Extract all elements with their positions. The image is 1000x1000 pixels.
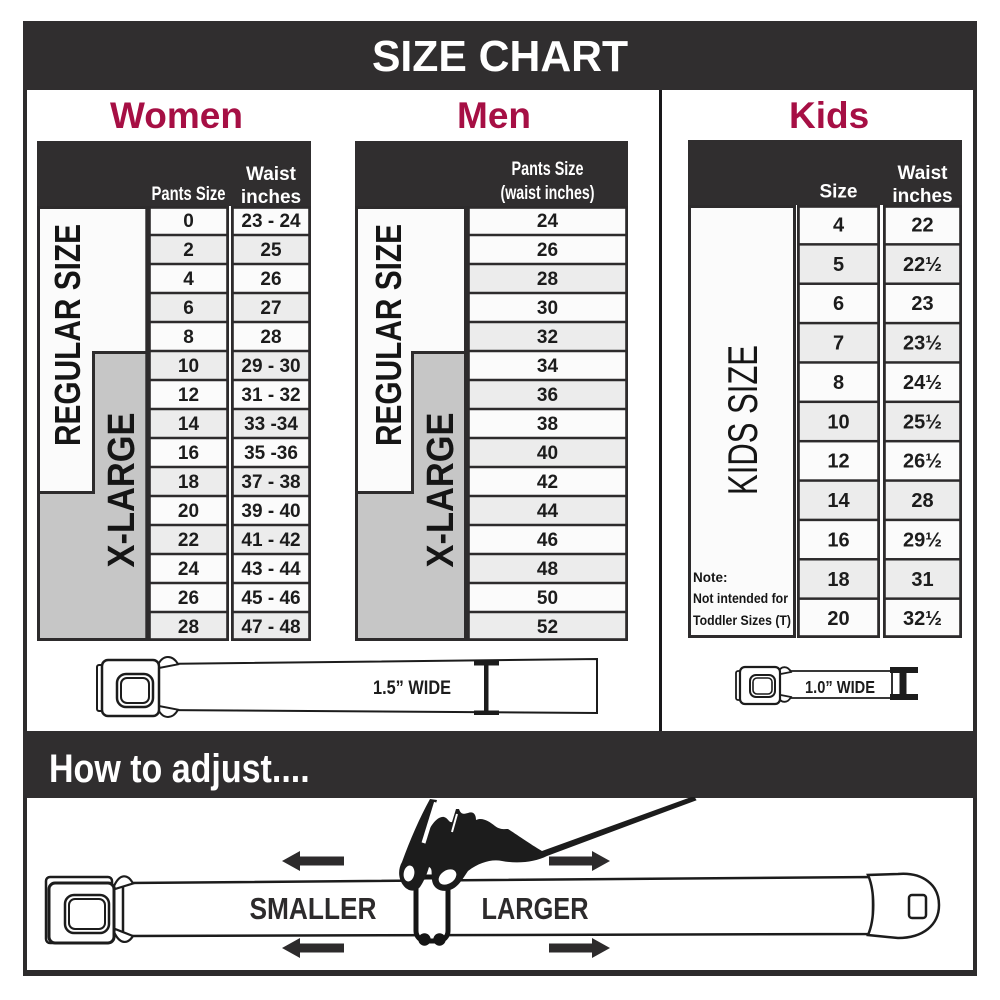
svg-text:4: 4 [183, 269, 194, 290]
svg-text:10: 10 [178, 356, 199, 377]
svg-text:33 -34: 33 -34 [244, 414, 298, 435]
svg-text:14: 14 [178, 414, 200, 435]
svg-text:40: 40 [537, 443, 558, 464]
svg-text:30: 30 [537, 298, 558, 319]
svg-text:Pants Size: Pants Size [152, 184, 226, 205]
svg-text:5: 5 [833, 254, 844, 276]
svg-text:4: 4 [833, 215, 845, 237]
svg-text:Pants Size: Pants Size [512, 159, 584, 180]
svg-text:22½: 22½ [903, 254, 942, 276]
svg-text:10: 10 [827, 411, 849, 433]
svg-text:inches: inches [241, 187, 301, 208]
svg-text:38: 38 [537, 414, 558, 435]
svg-text:41 - 42: 41 - 42 [241, 530, 300, 551]
svg-text:34: 34 [537, 356, 559, 377]
svg-text:X-LARGE: X-LARGE [101, 413, 143, 568]
svg-text:1.5” WIDE: 1.5” WIDE [373, 678, 451, 699]
svg-text:31: 31 [911, 569, 933, 591]
svg-text:36: 36 [537, 385, 558, 406]
svg-text:26: 26 [260, 269, 281, 290]
svg-text:28: 28 [537, 269, 558, 290]
svg-text:26½: 26½ [903, 451, 942, 473]
svg-text:26: 26 [537, 240, 558, 261]
svg-text:28: 28 [911, 490, 933, 512]
svg-text:18: 18 [178, 472, 199, 493]
svg-text:2: 2 [183, 240, 194, 261]
svg-text:24: 24 [178, 559, 200, 580]
svg-text:50: 50 [537, 588, 558, 609]
svg-text:7: 7 [833, 333, 844, 355]
svg-text:Waist: Waist [246, 164, 297, 185]
svg-text:X-LARGE: X-LARGE [420, 413, 462, 568]
svg-text:Not intended for: Not intended for [693, 591, 789, 606]
svg-text:16: 16 [827, 529, 849, 551]
svg-text:43 - 44: 43 - 44 [241, 559, 301, 580]
svg-text:8: 8 [833, 372, 844, 394]
svg-text:Size: Size [819, 182, 857, 203]
svg-text:28: 28 [260, 327, 281, 348]
svg-text:24½: 24½ [903, 372, 942, 394]
svg-text:14: 14 [827, 490, 850, 512]
svg-text:23½: 23½ [903, 333, 942, 355]
svg-text:22: 22 [911, 215, 933, 237]
svg-text:39 - 40: 39 - 40 [241, 501, 300, 522]
svg-text:0: 0 [183, 211, 194, 232]
svg-text:47 - 48: 47 - 48 [241, 617, 300, 638]
svg-text:44: 44 [537, 501, 559, 522]
svg-text:16: 16 [178, 443, 199, 464]
svg-text:52: 52 [537, 617, 558, 638]
svg-text:24: 24 [537, 211, 559, 232]
svg-text:Toddler Sizes (T): Toddler Sizes (T) [693, 613, 791, 628]
svg-text:32½: 32½ [903, 608, 942, 630]
svg-text:Waist: Waist [898, 163, 949, 184]
svg-text:18: 18 [827, 569, 849, 591]
svg-text:48: 48 [537, 559, 558, 580]
svg-text:KIDS SIZE: KIDS SIZE [719, 345, 766, 495]
svg-text:25: 25 [260, 240, 282, 261]
svg-text:6: 6 [833, 293, 844, 315]
svg-text:8: 8 [183, 327, 194, 348]
svg-text:LARGER: LARGER [482, 891, 589, 926]
svg-text:23: 23 [911, 293, 933, 315]
svg-text:REGULAR SIZE: REGULAR SIZE [368, 224, 409, 446]
svg-text:20: 20 [178, 501, 199, 522]
svg-text:SMALLER: SMALLER [250, 891, 377, 926]
svg-text:1.0” WIDE: 1.0” WIDE [805, 677, 875, 697]
svg-text:28: 28 [178, 617, 199, 638]
svg-text:REGULAR SIZE: REGULAR SIZE [47, 224, 88, 446]
svg-text:37 - 38: 37 - 38 [241, 472, 300, 493]
svg-text:26: 26 [178, 588, 199, 609]
svg-text:31 - 32: 31 - 32 [241, 385, 300, 406]
svg-text:6: 6 [183, 298, 194, 319]
svg-text:27: 27 [260, 298, 281, 319]
svg-text:46: 46 [537, 530, 558, 551]
svg-text:20: 20 [827, 608, 849, 630]
svg-text:35 -36: 35 -36 [244, 443, 298, 464]
svg-text:32: 32 [537, 327, 558, 348]
svg-text:Note:: Note: [693, 570, 728, 585]
svg-text:22: 22 [178, 530, 199, 551]
svg-text:inches: inches [892, 186, 952, 207]
svg-text:45 - 46: 45 - 46 [241, 588, 300, 609]
svg-text:12: 12 [178, 385, 199, 406]
svg-text:23 - 24: 23 - 24 [241, 211, 301, 232]
svg-text:12: 12 [827, 451, 849, 473]
svg-text:(waist inches): (waist inches) [501, 183, 595, 204]
svg-text:29 - 30: 29 - 30 [241, 356, 300, 377]
svg-text:25½: 25½ [903, 411, 942, 433]
svg-text:29½: 29½ [903, 529, 942, 551]
svg-text:42: 42 [537, 472, 558, 493]
